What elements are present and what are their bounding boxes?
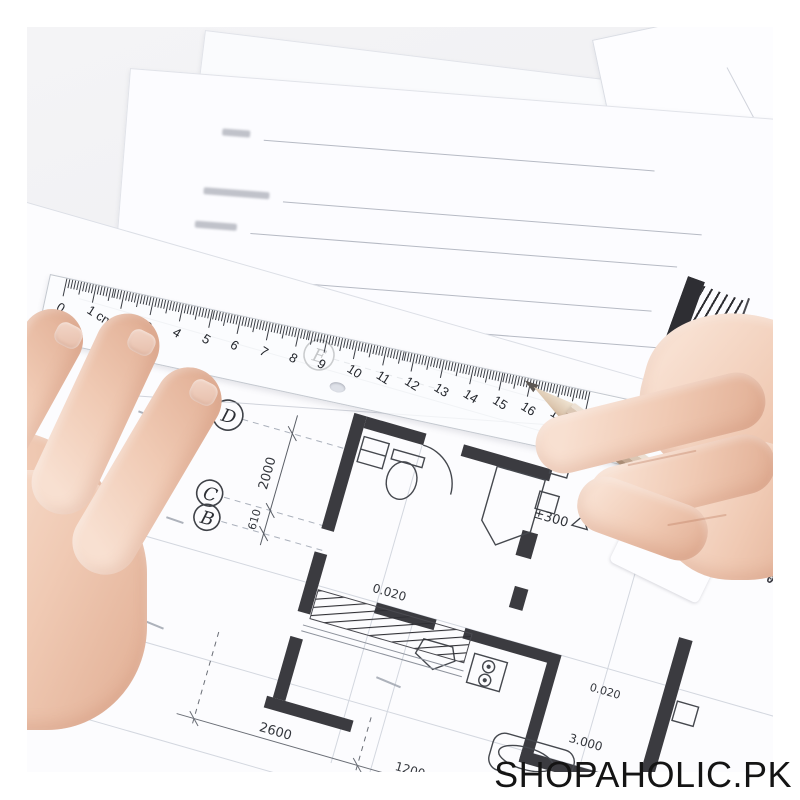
photo-area: E D C B 2000 610 — [27, 27, 773, 772]
ruler-tick — [78, 282, 82, 295]
form-row — [222, 128, 641, 171]
illegible-form-label — [203, 187, 269, 199]
ruler-tick — [310, 332, 314, 345]
product-photo: E D C B 2000 610 — [0, 0, 800, 800]
ruler-number: 12 — [403, 373, 423, 393]
ruler-number: 15 — [490, 392, 510, 412]
ruler-tick — [368, 344, 372, 357]
ruler-number: 11 — [373, 367, 392, 387]
ruler-tick — [572, 388, 576, 401]
ruler-tick — [397, 351, 401, 364]
ruler-number: 8 — [286, 349, 300, 366]
ruler-number: 5 — [199, 331, 213, 348]
ruler-tick — [107, 288, 111, 301]
ruler-tick — [456, 363, 460, 376]
illegible-form-label — [222, 128, 250, 137]
ruler-number: 10 — [344, 361, 364, 381]
ruler-tick — [223, 313, 227, 326]
ruler-number: 4 — [170, 324, 184, 341]
illegible-form-label — [195, 221, 237, 231]
ruler-hole — [329, 381, 347, 394]
ruler-number: 16 — [519, 399, 539, 419]
ruler-tick — [339, 338, 343, 351]
ruler-number: 9 — [315, 356, 329, 373]
ruler-tick — [252, 319, 256, 332]
ruler-number: 13 — [432, 380, 452, 400]
form-underline — [264, 140, 655, 172]
ruler-number: 14 — [461, 386, 481, 406]
ruler-tick — [281, 326, 285, 339]
ruler-tick — [165, 301, 169, 314]
ruler-tick — [427, 357, 431, 370]
ruler-tick — [136, 294, 140, 307]
ruler-tick — [514, 376, 518, 389]
ruler-tick — [194, 307, 198, 320]
ruler-number: 6 — [228, 337, 242, 354]
ruler-number: 7 — [257, 343, 271, 360]
watermark-text: SHOPAHOLIC.PK — [494, 754, 792, 796]
ruler-tick — [485, 370, 489, 383]
form-underline — [283, 201, 702, 235]
form-underline — [250, 233, 677, 268]
